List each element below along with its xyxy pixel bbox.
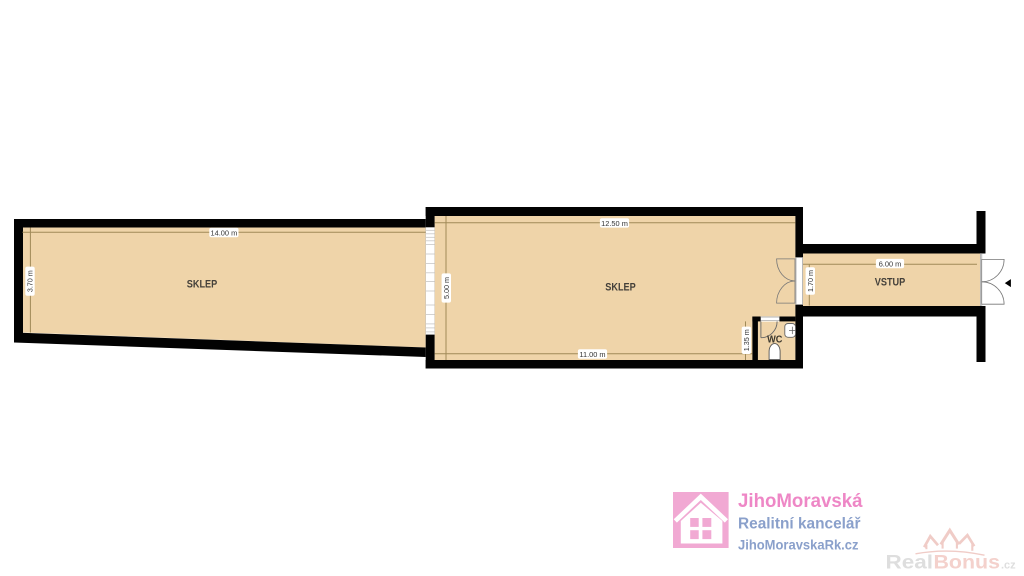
svg-text:JihoMoravskaRk.cz: JihoMoravskaRk.cz xyxy=(738,537,859,553)
svg-text:SKLEP: SKLEP xyxy=(605,282,636,294)
svg-text:3.70 m: 3.70 m xyxy=(26,270,35,292)
svg-text:.cz: .cz xyxy=(1001,559,1016,571)
svg-text:14.00 m: 14.00 m xyxy=(211,228,238,237)
svg-text:VSTUP: VSTUP xyxy=(875,276,906,288)
svg-text:Realitní kancelář: Realitní kancelář xyxy=(738,516,861,533)
svg-text:6.00 m: 6.00 m xyxy=(879,260,902,269)
svg-text:1.35 m: 1.35 m xyxy=(742,329,751,351)
svg-text:JihoMoravská: JihoMoravská xyxy=(738,490,863,512)
svg-text:WC: WC xyxy=(767,334,783,346)
svg-text:SKLEP: SKLEP xyxy=(187,279,218,291)
svg-text:12.50 m: 12.50 m xyxy=(601,219,628,228)
svg-text:Real: Real xyxy=(886,552,934,573)
svg-text:11.00 m: 11.00 m xyxy=(579,350,605,359)
svg-text:1.70 m: 1.70 m xyxy=(806,270,815,292)
svg-text:5.00 m: 5.00 m xyxy=(442,277,451,299)
svg-text:Bonus: Bonus xyxy=(934,552,1001,573)
